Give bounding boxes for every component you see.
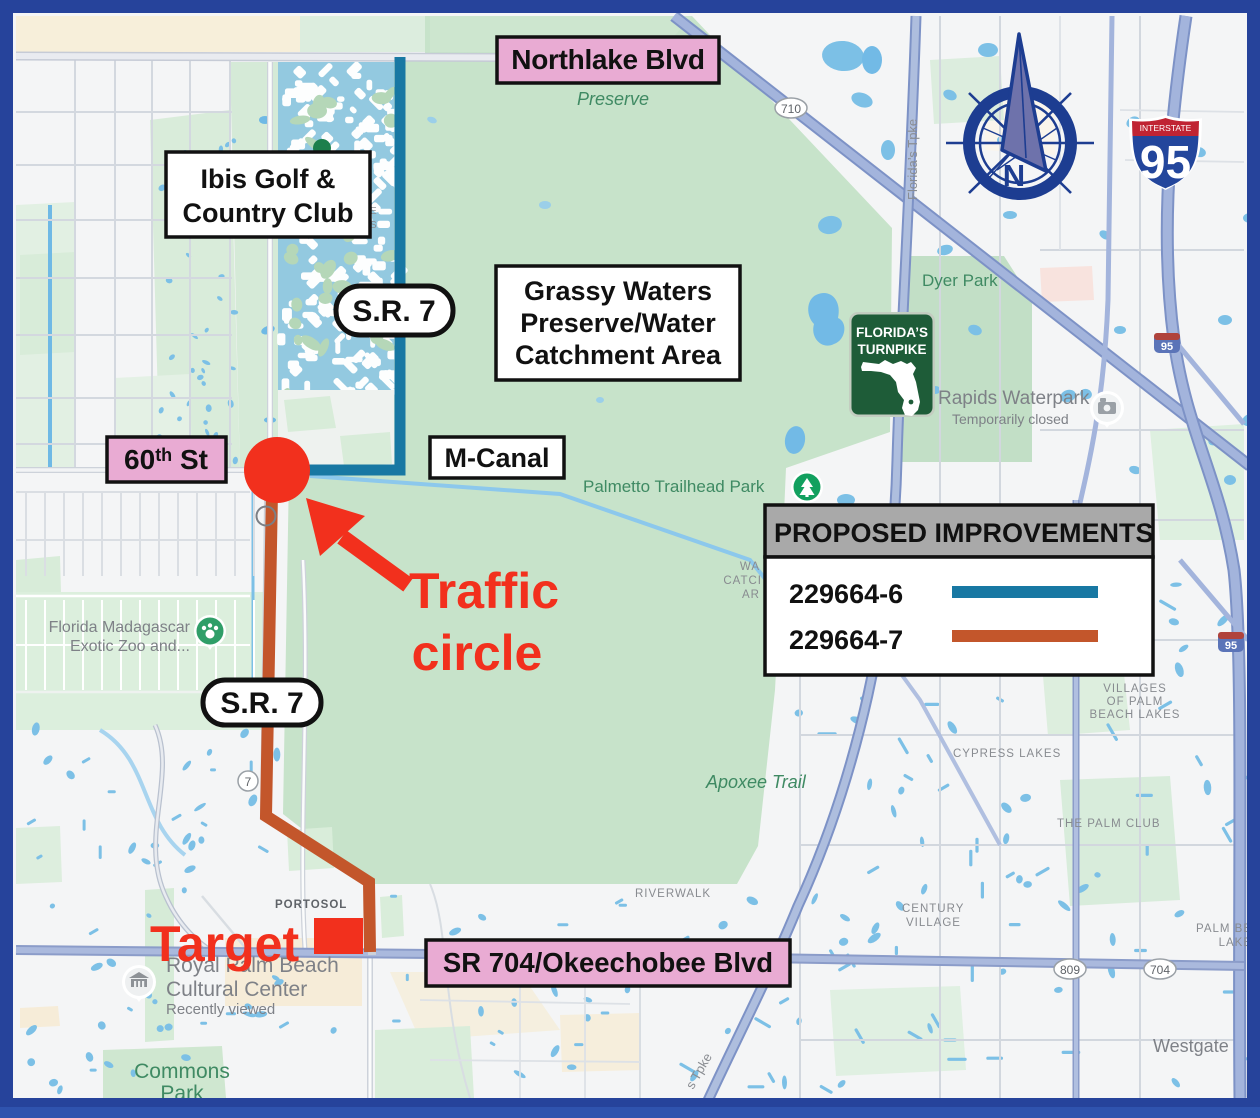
svg-text:WA: WA: [740, 561, 760, 573]
svg-text:Traffic: Traffic: [409, 563, 559, 619]
svg-text:TURNPIKE: TURNPIKE: [857, 342, 926, 357]
svg-text:CYPRESS LAKES: CYPRESS LAKES: [953, 748, 1061, 760]
svg-text:95: 95: [1161, 341, 1173, 353]
svg-text:7: 7: [245, 775, 252, 789]
svg-text:Northlake Blvd: Northlake Blvd: [511, 44, 704, 75]
svg-text:LAKE: LAKE: [1219, 937, 1252, 949]
svg-text:RIVERWALK: RIVERWALK: [635, 888, 711, 900]
svg-text:N: N: [1003, 158, 1025, 193]
svg-text:95: 95: [1140, 136, 1191, 188]
svg-text:S.R. 7: S.R. 7: [220, 687, 303, 720]
svg-text:Target: Target: [150, 916, 299, 972]
svg-text:Florida’s Tpke: Florida’s Tpke: [905, 119, 920, 200]
svg-text:AR: AR: [742, 589, 760, 601]
svg-text:Recently viewed: Recently viewed: [166, 1001, 275, 1018]
svg-text:BEACH LAKES: BEACH LAKES: [1090, 709, 1181, 721]
svg-text:SR 704/Okeechobee Blvd: SR 704/Okeechobee Blvd: [443, 947, 773, 978]
svg-text:809: 809: [1060, 963, 1080, 977]
svg-text:Catchment Area: Catchment Area: [515, 340, 722, 370]
svg-text:Country Club: Country Club: [183, 198, 354, 228]
svg-text:Preserve/Water: Preserve/Water: [520, 308, 716, 338]
svg-text:VILLAGE: VILLAGE: [906, 917, 961, 929]
svg-text:PROPOSED IMPROVEMENTS: PROPOSED IMPROVEMENTS: [774, 518, 1154, 548]
svg-text:OF PALM: OF PALM: [1107, 696, 1164, 708]
svg-text:229664-6: 229664-6: [789, 579, 903, 609]
svg-text:704: 704: [1150, 963, 1170, 977]
svg-text:circle: circle: [412, 625, 543, 681]
svg-text:Dyer Park: Dyer Park: [922, 271, 998, 290]
svg-text:Westgate: Westgate: [1153, 1036, 1229, 1056]
svg-text:INTERSTATE: INTERSTATE: [1140, 123, 1192, 133]
svg-text:Preserve: Preserve: [577, 89, 649, 109]
svg-text:CATCI: CATCI: [723, 575, 762, 587]
svg-text:PORTOSOL: PORTOSOL: [275, 899, 347, 911]
svg-text:Temporarily closed: Temporarily closed: [952, 411, 1069, 427]
svg-text:Rapids Waterpark: Rapids Waterpark: [938, 388, 1090, 409]
svg-text:710: 710: [781, 102, 801, 116]
svg-text:Cultural Center: Cultural Center: [166, 978, 307, 1001]
svg-text:FLORIDA’S: FLORIDA’S: [856, 325, 928, 340]
svg-text:Exotic Zoo and...: Exotic Zoo and...: [70, 638, 190, 655]
svg-text:PALM BE: PALM BE: [1196, 923, 1252, 935]
svg-text:Palmetto Trailhead Park: Palmetto Trailhead Park: [583, 477, 765, 496]
svg-text:S.R. 7: S.R. 7: [352, 295, 435, 328]
svg-text:M-Canal: M-Canal: [444, 443, 549, 473]
svg-text:Commons: Commons: [134, 1060, 230, 1083]
svg-text:VILLAGES: VILLAGES: [1103, 683, 1167, 695]
svg-text:CENTURY: CENTURY: [902, 903, 964, 915]
svg-text:Ibis Golf &: Ibis Golf &: [201, 164, 336, 194]
svg-text:Grassy Waters: Grassy Waters: [524, 276, 712, 306]
svg-text:229664-7: 229664-7: [789, 625, 903, 655]
svg-text:Apoxee Trail: Apoxee Trail: [705, 772, 807, 792]
svg-text:THE PALM CLUB: THE PALM CLUB: [1057, 818, 1161, 830]
svg-text:95: 95: [1225, 640, 1237, 652]
svg-text:Florida Madagascar: Florida Madagascar: [49, 619, 191, 636]
